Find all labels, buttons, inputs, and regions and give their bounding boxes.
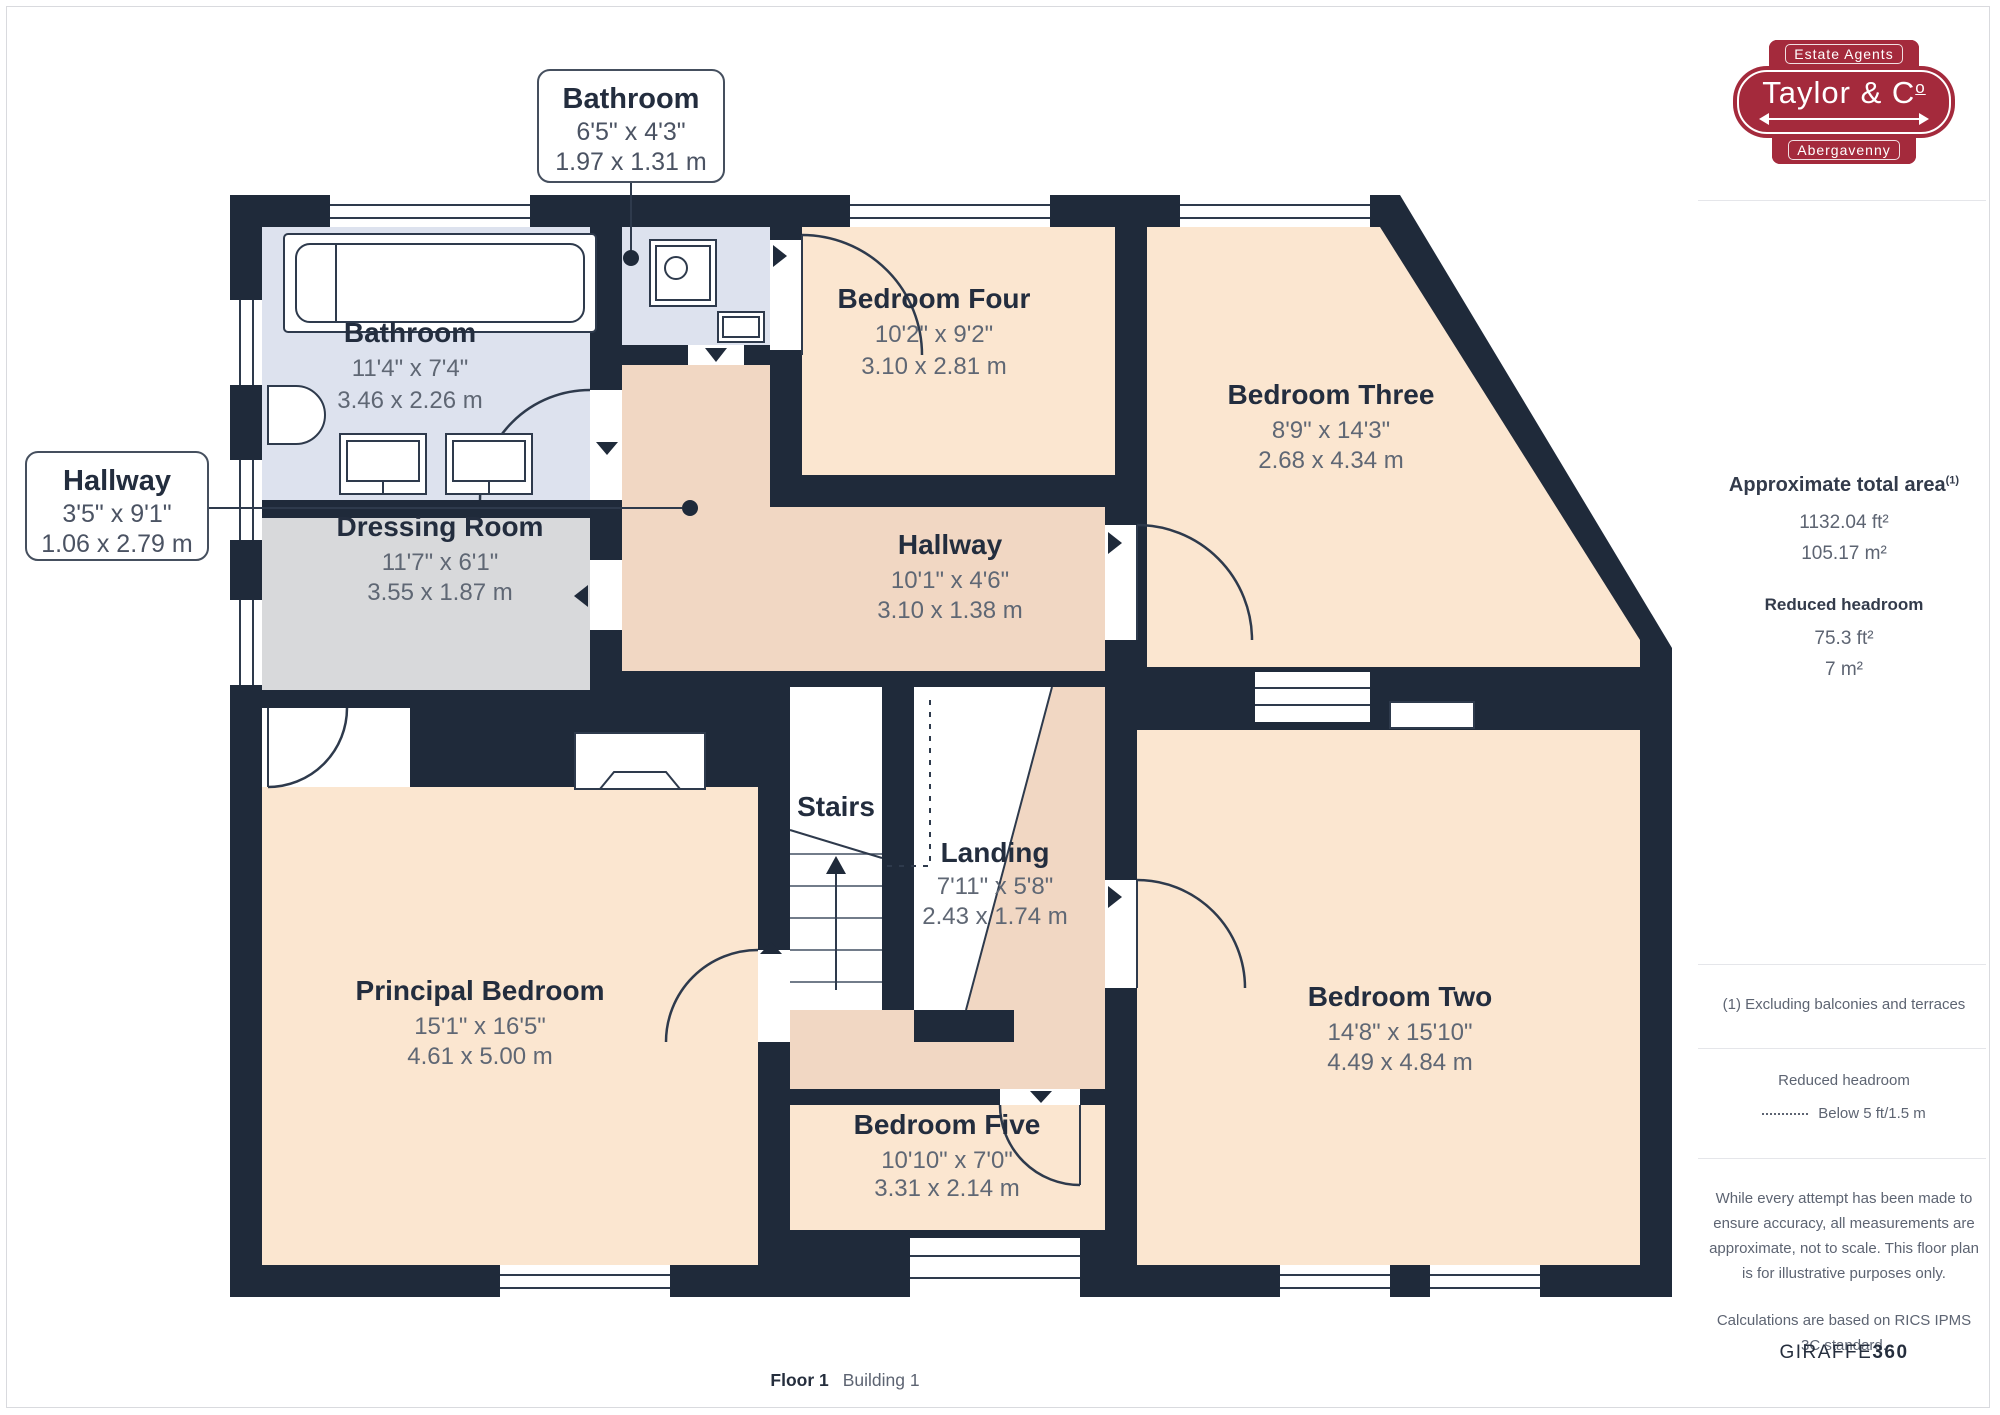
footer-building: Building 1 (843, 1370, 920, 1390)
dotted-line-icon (1762, 1113, 1808, 1115)
svg-text:3.10 x 1.38 m: 3.10 x 1.38 m (877, 597, 1022, 624)
wall-hallway-stairs (622, 671, 1052, 687)
svg-text:3.10 x 2.81 m: 3.10 x 2.81 m (861, 353, 1006, 380)
legend-item: Below 5 ft/1.5 m (1818, 1105, 1926, 1122)
agency-logo: Estate Agents Taylor & Co Abergavenny (1694, 40, 1994, 164)
chimney-breast (575, 733, 705, 789)
callout-hallway-m: 1.06 x 2.79 m (41, 530, 192, 558)
svg-text:Principal Bedroom: Principal Bedroom (356, 975, 605, 1006)
double-arrow-icon (1759, 113, 1929, 125)
corridor-floor (622, 365, 770, 507)
legend-title: Reduced headroom (1694, 1072, 1994, 1089)
room-label-landing: Landing 7'11" x 5'8" 2.43 x 1.74 m (922, 837, 1067, 930)
reduced-headroom-m: 7 m² (1694, 654, 1994, 685)
svg-text:Landing: Landing (941, 837, 1050, 868)
logo-town: Abergavenny (1788, 140, 1900, 160)
svg-text:3.55 x 1.87 m: 3.55 x 1.87 m (367, 579, 512, 606)
callout-bathroom-m: 1.97 x 1.31 m (555, 148, 706, 176)
svg-text:4.49 x 4.84 m: 4.49 x 4.84 m (1327, 1049, 1472, 1076)
svg-text:10'1" x 4'6": 10'1" x 4'6" (891, 567, 1009, 594)
svg-text:Hallway: Hallway (898, 529, 1003, 560)
logo-tagline: Estate Agents (1785, 44, 1902, 64)
headroom-legend: Reduced headroom Below 5 ft/1.5 m (1694, 1072, 1994, 1122)
area-stats: Approximate total area(1) 1132.04 ft² 10… (1694, 474, 1994, 685)
footer-floor: Floor 1 (770, 1370, 828, 1390)
callout-bathroom-ft: 6'5" x 4'3" (576, 118, 685, 146)
sidebar-divider (1698, 1048, 1986, 1049)
total-area-label: Approximate total area(1) (1694, 474, 1994, 497)
opening-dressing (590, 560, 622, 630)
shower-icon (650, 240, 716, 306)
sidebar: Estate Agents Taylor & Co Abergavenny Ap… (1694, 0, 1994, 1415)
disclaimer-text: While every attempt has been made to ens… (1708, 1186, 1980, 1286)
svg-text:Bathroom: Bathroom (344, 317, 476, 348)
svg-text:4.61 x 5.00 m: 4.61 x 5.00 m (407, 1043, 552, 1070)
floor-plan: Bathroom 6'5" x 4'3" 1.97 x 1.31 m Hallw… (0, 0, 1690, 1415)
sink-icon (446, 434, 532, 494)
room-label-hallway: Hallway 10'1" x 4'6" 3.10 x 1.38 m (877, 529, 1022, 624)
chimney-breast (1390, 702, 1474, 728)
sidebar-divider (1698, 964, 1986, 965)
reduced-headroom-ft: 75.3 ft² (1694, 623, 1994, 654)
svg-text:2.68 x 4.34 m: 2.68 x 4.34 m (1258, 447, 1403, 474)
svg-text:10'10" x 7'0": 10'10" x 7'0" (881, 1147, 1013, 1174)
total-area-ft: 1132.04 ft² (1694, 507, 1994, 538)
giraffe360-logo: GIRAFFE360 (1694, 1342, 1994, 1364)
small-sink-icon (718, 312, 764, 342)
svg-text:11'7" x 6'1": 11'7" x 6'1" (382, 549, 499, 576)
svg-text:10'2" x 9'2": 10'2" x 9'2" (875, 321, 993, 348)
svg-text:Bedroom Three: Bedroom Three (1228, 379, 1435, 410)
svg-text:15'1" x 16'5": 15'1" x 16'5" (414, 1013, 546, 1040)
svg-text:Bedroom Two: Bedroom Two (1308, 981, 1493, 1012)
total-area-m: 105.17 m² (1694, 538, 1994, 569)
svg-text:11'4" x 7'4": 11'4" x 7'4" (352, 355, 469, 382)
wall-below-landing (914, 1010, 1014, 1042)
footer: Floor 1Building 1 (0, 1370, 1690, 1391)
callout-bathroom-name: Bathroom (563, 83, 700, 115)
toilet-icon (268, 386, 325, 444)
agency-name: Taylor & Co (1759, 75, 1929, 111)
callout-hallway-name: Hallway (63, 465, 171, 497)
sidebar-divider (1698, 200, 1986, 201)
svg-text:7'11" x 5'8": 7'11" x 5'8" (937, 873, 1054, 900)
sidebar-divider (1698, 1158, 1986, 1159)
svg-text:3.46 x 2.26 m: 3.46 x 2.26 m (337, 387, 482, 414)
callout-hallway-ft: 3'5" x 9'1" (62, 500, 171, 528)
room-hallway-floor (622, 507, 1105, 671)
room-label-bedroom2: Bedroom Two 14'8" x 15'10" 4.49 x 4.84 m (1308, 981, 1493, 1076)
svg-text:8'9" x 14'3": 8'9" x 14'3" (1272, 417, 1390, 444)
svg-text:3.31 x 2.14 m: 3.31 x 2.14 m (874, 1175, 1019, 1202)
svg-text:Stairs: Stairs (797, 791, 875, 822)
room-bedroom4-floor (802, 227, 1115, 475)
svg-text:14'8" x 15'10": 14'8" x 15'10" (1328, 1019, 1473, 1046)
svg-text:Bedroom Four: Bedroom Four (838, 283, 1031, 314)
room-label-bedroom5: Bedroom Five 10'10" x 7'0" 3.31 x 2.14 m (854, 1109, 1041, 1202)
opening-principal (758, 950, 790, 1042)
floorplan-page: Bathroom 6'5" x 4'3" 1.97 x 1.31 m Hallw… (0, 0, 2000, 1415)
logo-pill: Taylor & Co (1733, 66, 1955, 138)
svg-text:Dressing Room: Dressing Room (337, 511, 544, 542)
reduced-headroom-label: Reduced headroom (1694, 595, 1994, 615)
room-label-stairs: Stairs (797, 791, 875, 822)
sink-icon (340, 434, 426, 494)
svg-text:2.43 x 1.74 m: 2.43 x 1.74 m (922, 903, 1067, 930)
area-footnote: (1) Excluding balconies and terraces (1694, 996, 1994, 1013)
svg-text:Bedroom Five: Bedroom Five (854, 1109, 1041, 1140)
disclaimer: While every attempt has been made to ens… (1708, 1186, 1980, 1358)
room-label-bathroom: Bathroom 11'4" x 7'4" 3.46 x 2.26 m (337, 317, 482, 414)
